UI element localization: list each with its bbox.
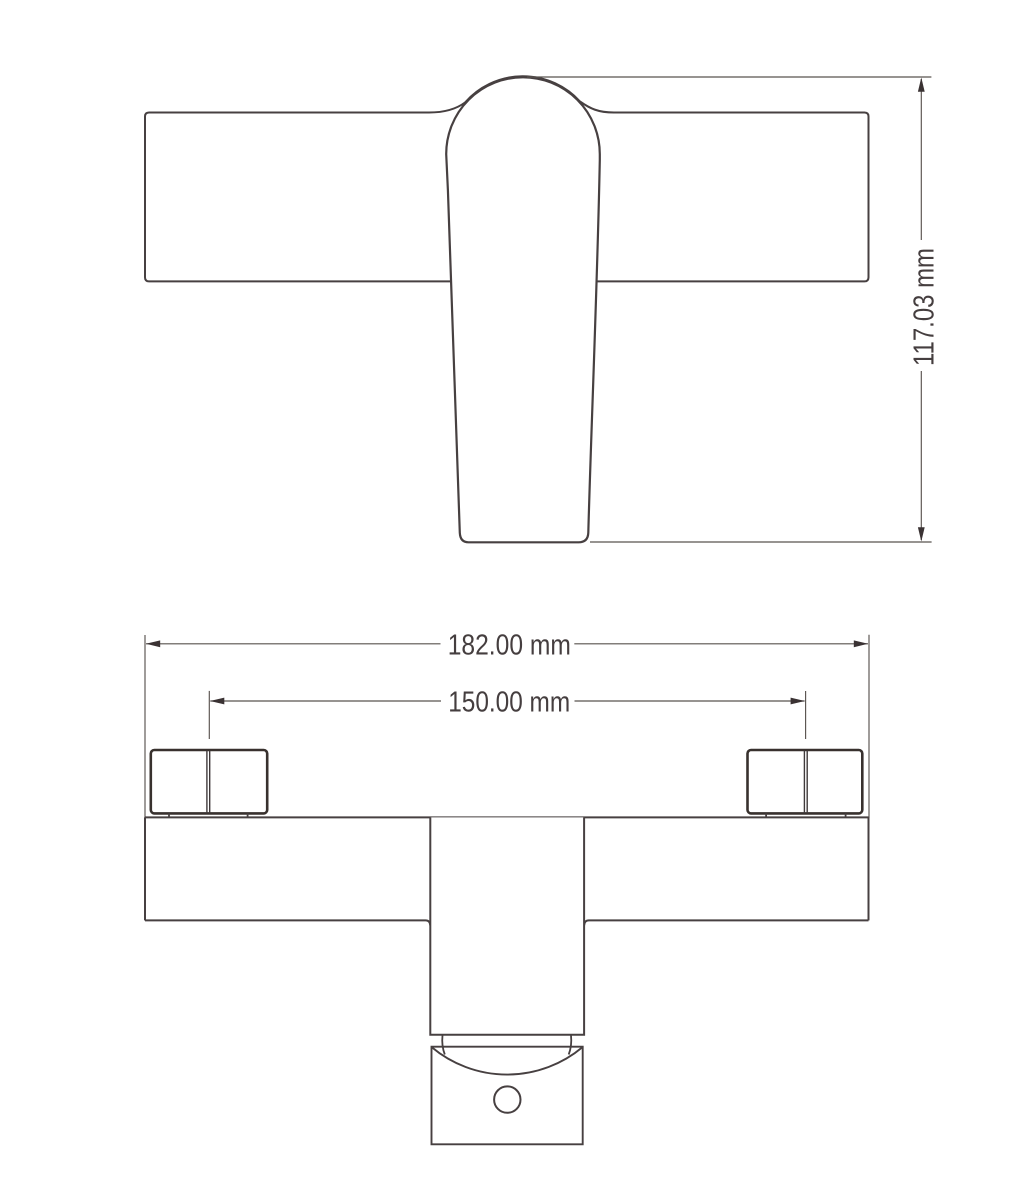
svg-text:117.03 mm: 117.03 mm	[909, 248, 941, 366]
svg-text:182.00 mm: 182.00 mm	[448, 630, 571, 662]
svg-text:150.00 mm: 150.00 mm	[448, 687, 570, 719]
